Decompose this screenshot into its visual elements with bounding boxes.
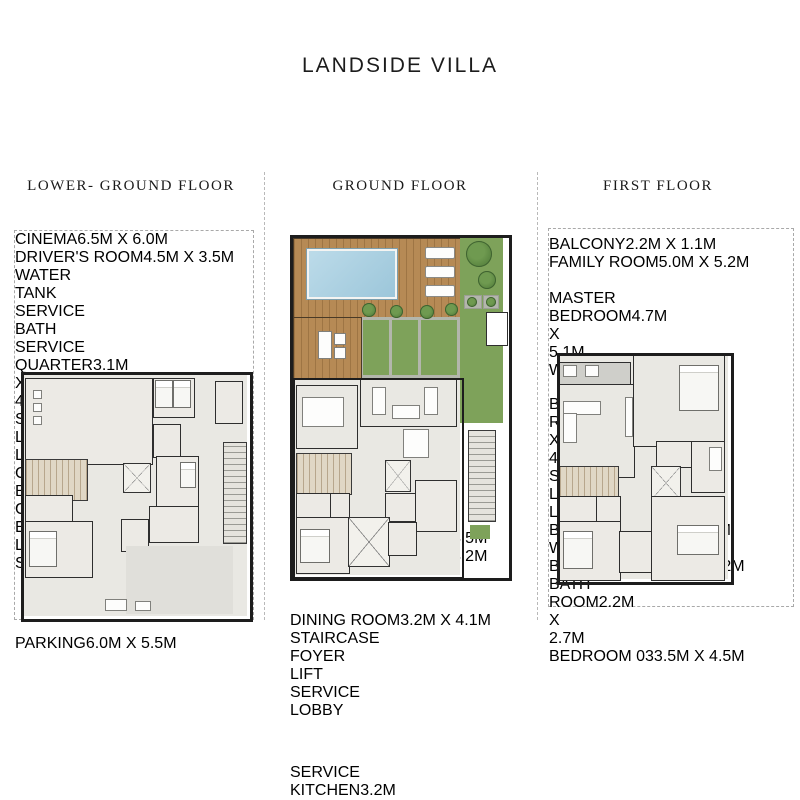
escape-staircase [223,442,247,544]
room-label-family: FAMILY ROOM5.0M X 5.2M [549,254,793,272]
room-wic-master [656,441,693,468]
bathtub-icon [709,447,722,471]
table-icon [318,331,332,359]
dining-table-icon [403,429,429,458]
lift-shaft [123,463,151,493]
bed-icon [173,380,191,408]
backyard-lawn [392,320,418,375]
fixture-icon [105,599,127,611]
lawn-patch [470,525,490,539]
bed-icon [155,380,173,408]
column-divider [264,172,265,620]
cinema-speaker-icon [33,416,42,425]
first-floor-plan: BALCONY2.2M X 1.1M FAMILY ROOM5.0M X 5.2… [548,228,794,607]
room-service-bath [153,424,181,458]
lounger-icon [425,285,455,297]
lift-shaft [385,460,411,492]
floor-title-ground: GROUND FLOOR [332,178,467,195]
floor-title-first: FIRST FLOOR [603,178,713,195]
backyard-lawn [363,320,389,375]
sofa-icon [302,397,344,427]
room-bathroom-g [296,493,332,519]
lounger-icon [425,247,455,259]
sink-icon [549,388,557,396]
room-service-kitchen [415,480,457,532]
room-label-service-bath: SERVICE BATH [15,303,41,339]
room-label-cinema: CINEMA6.5M X 6.0M [15,231,253,249]
room-label-service-kitchen: SERVICE KITCHEN3.2M X 3.0M [290,764,320,800]
dining-chairs-icon [290,589,296,612]
room-cinema [25,378,153,465]
staircase [296,453,352,495]
room-lpg [486,312,508,346]
room-powder [388,522,417,556]
tree-icon [420,305,434,319]
tree-icon [478,271,496,289]
tree-icon [445,303,458,316]
tree-icon [486,297,496,307]
room-label-dining: DINING ROOM3.2M X 4.1M [290,612,506,630]
room-store [149,506,199,543]
lower-ground-floor-plan: CINEMA6.5M X 6.0M DRIVER'S ROOM4.5M X 3.… [14,230,254,620]
backyard-lawn [421,320,457,375]
sofa-icon [372,387,386,415]
tree-icon [362,303,376,317]
cinema-speaker-icon [33,403,42,412]
room-label-lift-g: LIFT [290,666,506,684]
room-bath3 [619,531,653,573]
tree-icon [390,305,403,318]
ground-floor-plan: SWIMMING POOL5.2M X 3.3M POOL DECK LPG R… [290,235,506,592]
room-label-drivers: DRIVER'S ROOM4.5M X 3.5M [15,249,253,267]
chair-icon [585,365,599,377]
bed-icon [679,365,719,411]
room-wic2 [596,496,621,523]
room-water-tank [215,381,243,424]
room-bathroom-f [559,496,598,523]
open-to-below [348,517,390,567]
bed-icon [563,531,593,569]
room-label-bath3: BATH ROOM2.2M X 2.7M [549,576,575,648]
cinema-speaker-icon [33,390,42,399]
sink-icon [549,380,557,388]
chair-icon [549,272,558,281]
chair-icon [549,281,558,290]
table-icon [549,229,556,236]
chair-icon [563,365,577,377]
chair-icon [334,347,346,359]
room-wc [330,493,350,519]
bed-icon [300,529,330,563]
room-label-staircase-g: STAIRCASE [290,630,506,648]
lounger-icon [425,266,455,278]
floor-title-lower-ground: LOWER- GROUND FLOOR [27,178,235,195]
room-label-parking: PARKING6.0M X 5.5M [15,635,253,653]
chair-icon [334,333,346,345]
bed-icon [29,531,57,567]
bed-icon [677,525,719,555]
fixture-icon [135,601,151,611]
page-title: LANDSIDE VILLA [0,54,800,78]
lift-shaft [651,466,681,500]
sofa-icon [424,387,438,415]
tree-icon [466,241,492,267]
floorplan-sheet: LANDSIDE VILLA LOWER- GROUND FLOOR GROUN… [0,0,800,800]
kitchen-counter-icon [290,720,296,764]
room-label-master: MASTER BEDROOM4.7M X 5.1M [549,290,589,362]
tree-icon [467,297,477,307]
garden-staircase [468,430,496,522]
room-label-bedroom03: BEDROOM 033.5M X 4.5M [549,648,793,666]
sofa-icon [563,413,577,443]
room-label-service-lobby: SERVICE LOBBY [290,684,318,720]
column-divider [537,172,538,620]
room-bathroom [25,495,73,523]
table-icon [392,405,420,419]
swimming-pool [307,249,397,299]
room-label-foyer: FOYER [290,648,506,666]
tv-unit-icon [625,397,633,437]
room-label-balcony: BALCONY2.2M X 1.1M [549,236,793,254]
room-label-water-tank: WATER TANK [15,267,39,303]
bed-icon [180,462,196,488]
